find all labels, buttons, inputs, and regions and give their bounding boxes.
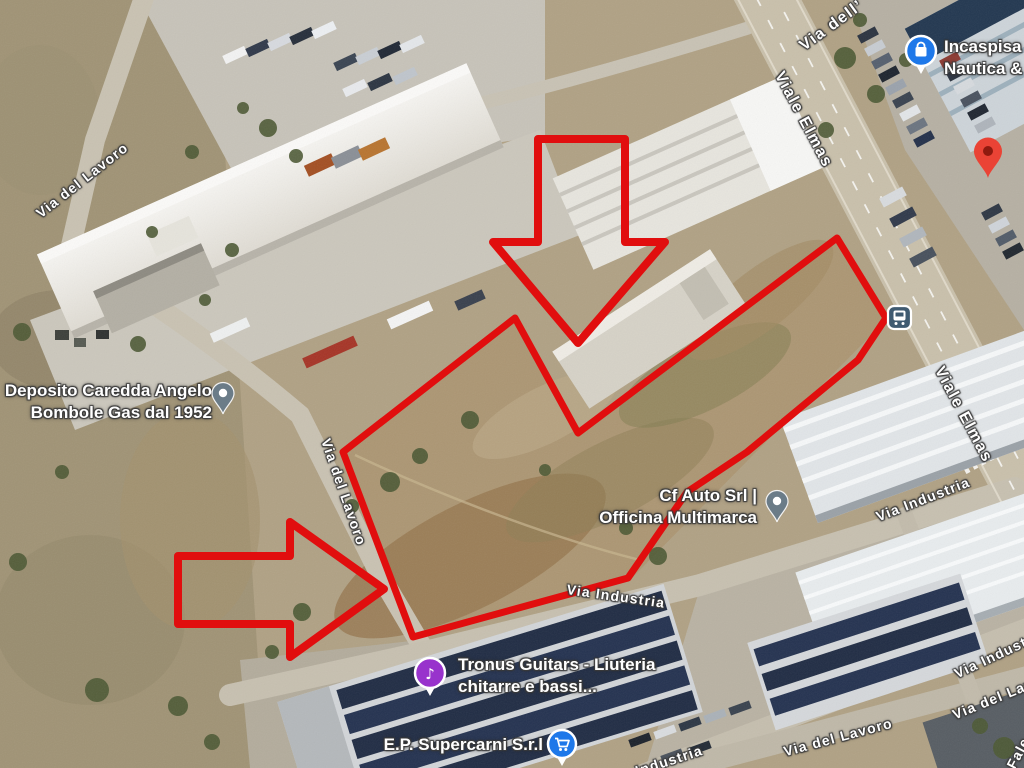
poi-label-incaspisa[interactable]: Incaspisa Nautica &	[944, 36, 1022, 80]
guitar-icon[interactable]: ♪	[412, 656, 448, 700]
red-map-pin-icon[interactable]	[969, 132, 1007, 182]
svg-text:♪: ♪	[425, 665, 435, 683]
map-canvas[interactable]: Via del Lavoro Via dell’ Viale Elmas Via…	[0, 0, 1024, 768]
map-pin-icon-deposito[interactable]	[208, 378, 238, 418]
bus-stop-icon[interactable]	[886, 304, 913, 331]
map-pin-icon-cf-auto[interactable]	[762, 486, 792, 526]
shopping-cart-icon[interactable]	[545, 728, 579, 768]
shopping-bag-icon[interactable]	[903, 34, 939, 78]
poi-label-cf-auto[interactable]: Cf Auto Srl | Officina Multimarca	[599, 485, 757, 529]
poi-label-ep-supercarni[interactable]: E.P. Supercarni S.r.l	[384, 734, 543, 756]
poi-label-deposito-caredda[interactable]: Deposito Caredda Angelo Bombole Gas dal …	[5, 380, 212, 424]
poi-label-tronus-guitars[interactable]: Tronus Guitars - Liuteria chitarre e bas…	[458, 654, 655, 698]
